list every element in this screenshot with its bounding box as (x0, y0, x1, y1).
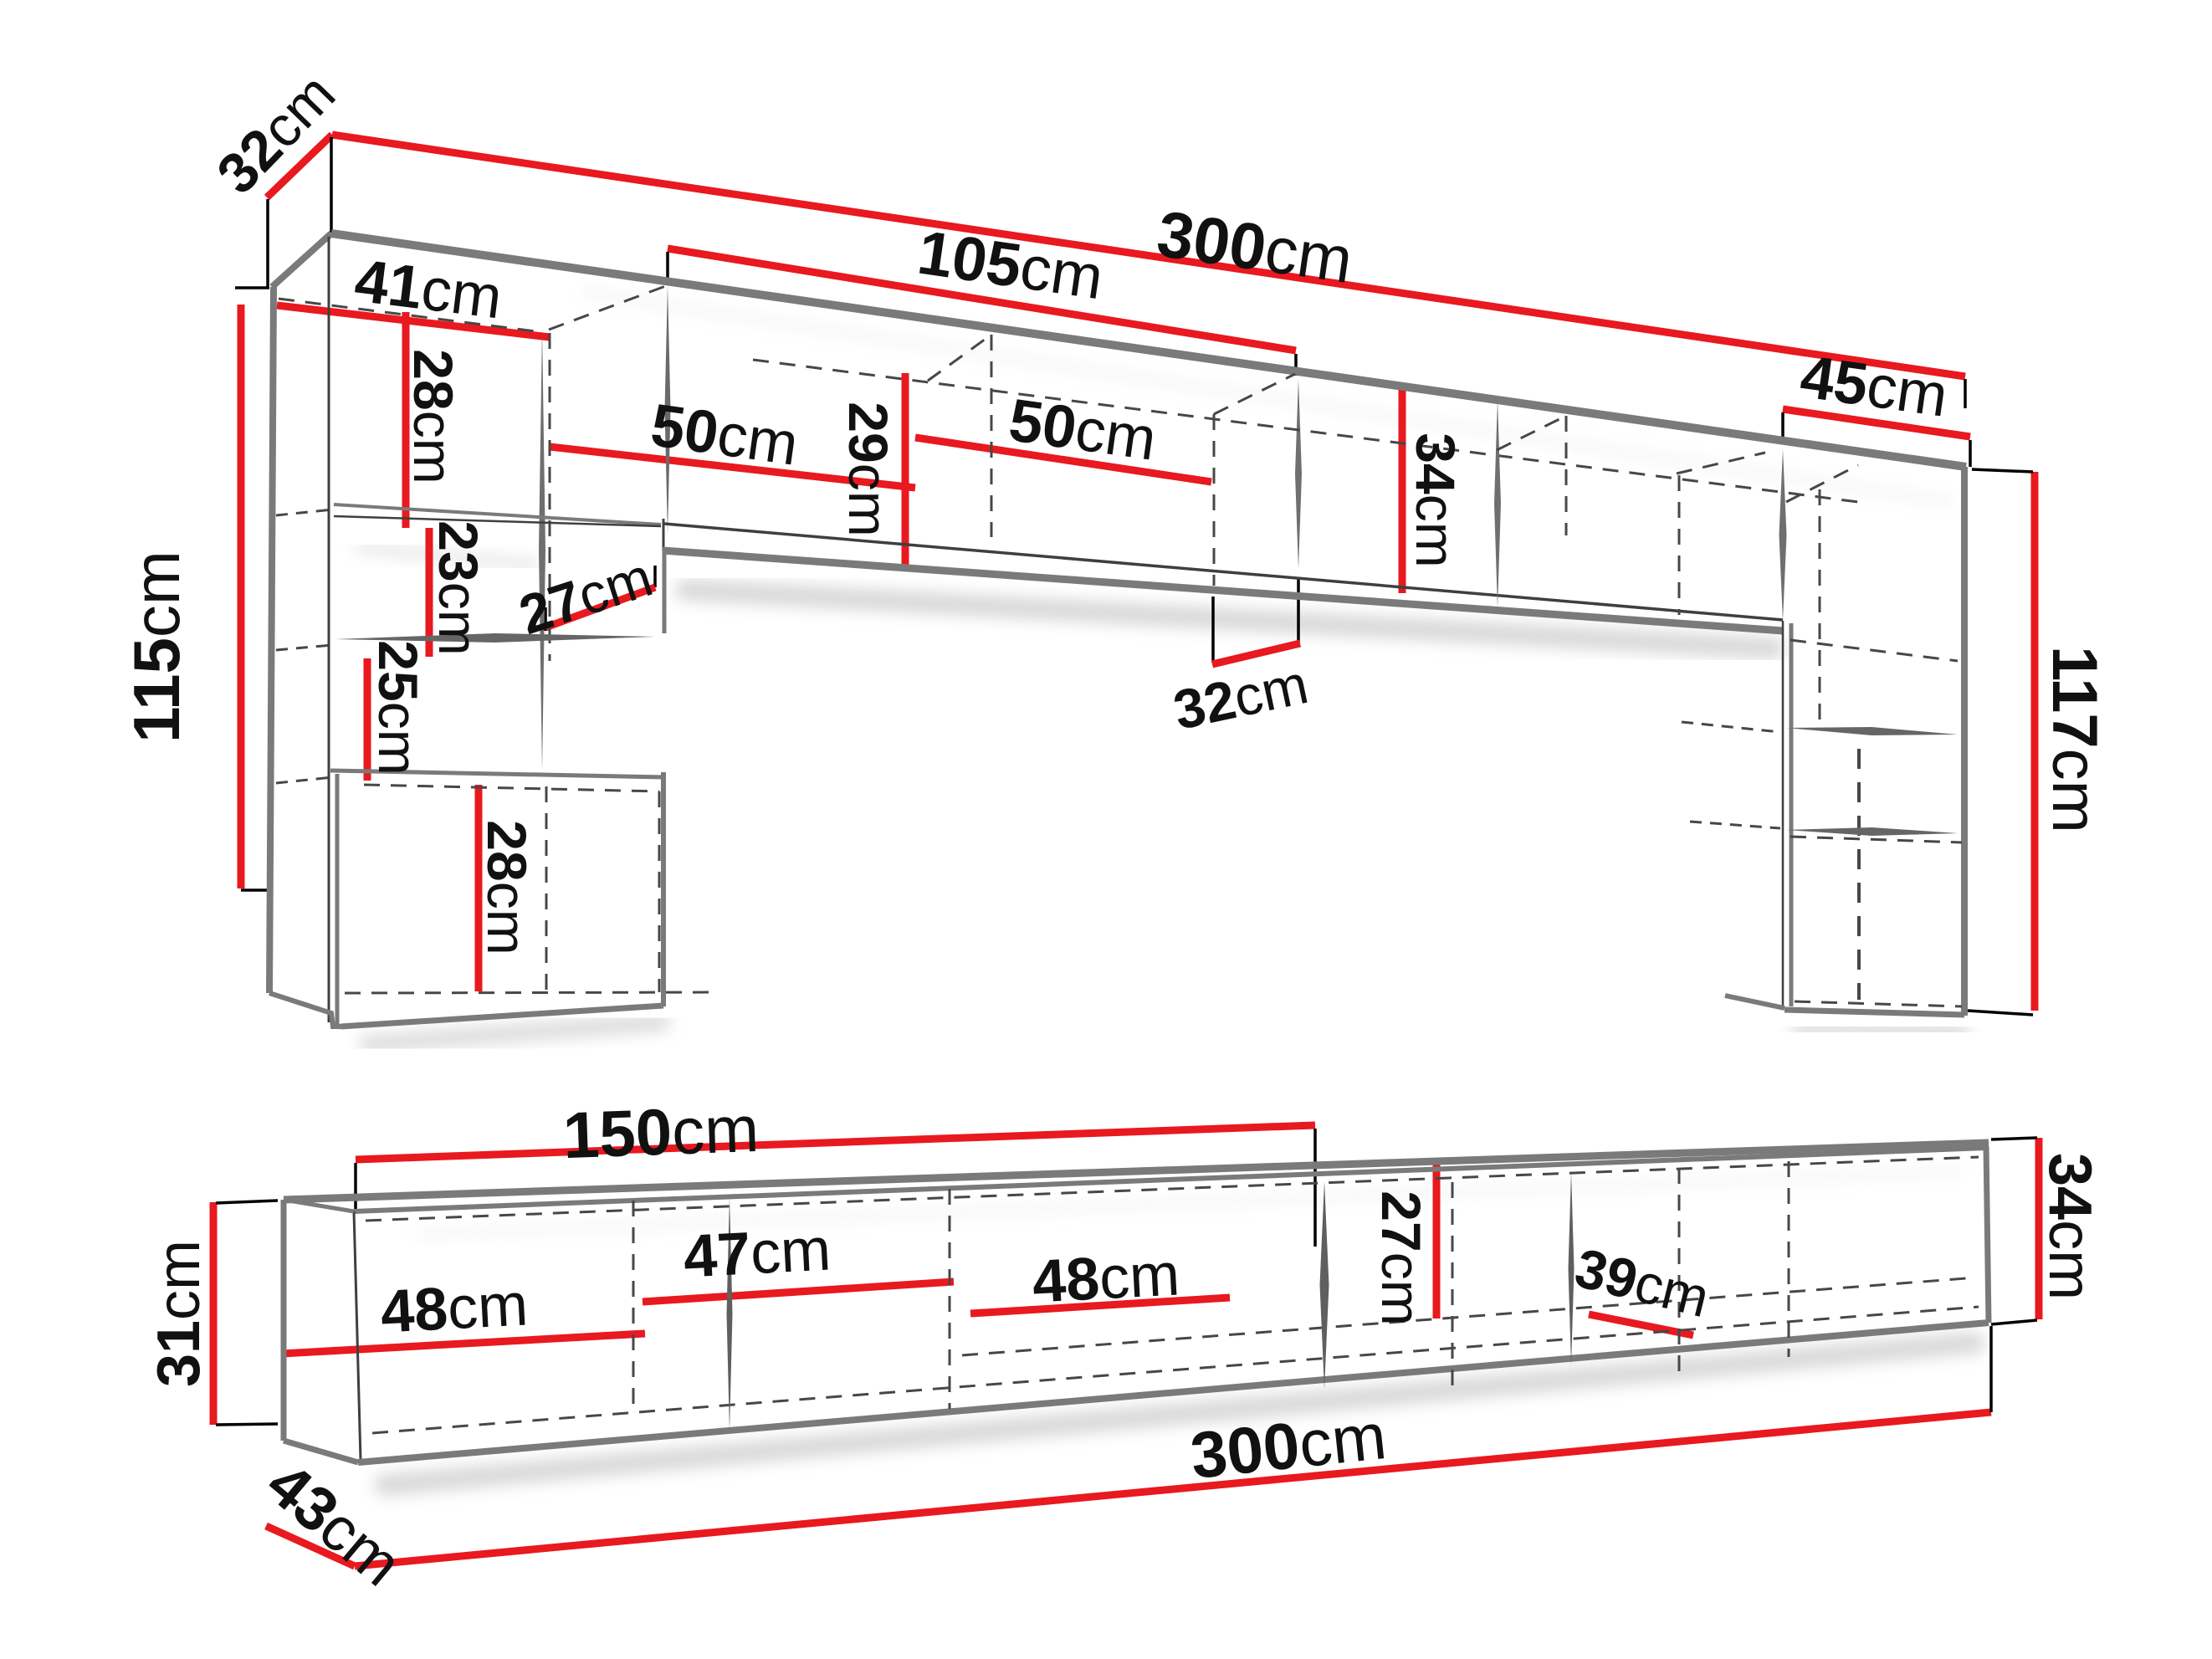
svg-text:31cm: 31cm (146, 1240, 212, 1387)
svg-text:34cm: 34cm (2036, 1153, 2103, 1300)
svg-text:117cm: 117cm (2040, 646, 2111, 833)
svg-text:48cm: 48cm (1031, 1241, 1181, 1315)
svg-text:25cm: 25cm (367, 640, 429, 775)
svg-text:150cm: 150cm (561, 1092, 760, 1172)
svg-text:115cm: 115cm (120, 550, 193, 743)
svg-text:28cm: 28cm (402, 349, 464, 484)
svg-text:47cm: 47cm (682, 1216, 832, 1290)
svg-text:34cm: 34cm (1405, 433, 1467, 567)
svg-text:29cm: 29cm (837, 402, 899, 536)
svg-text:27cm: 27cm (1370, 1190, 1432, 1325)
svg-text:28cm: 28cm (476, 820, 538, 955)
svg-text:48cm: 48cm (379, 1271, 530, 1345)
svg-text:23cm: 23cm (428, 520, 489, 655)
